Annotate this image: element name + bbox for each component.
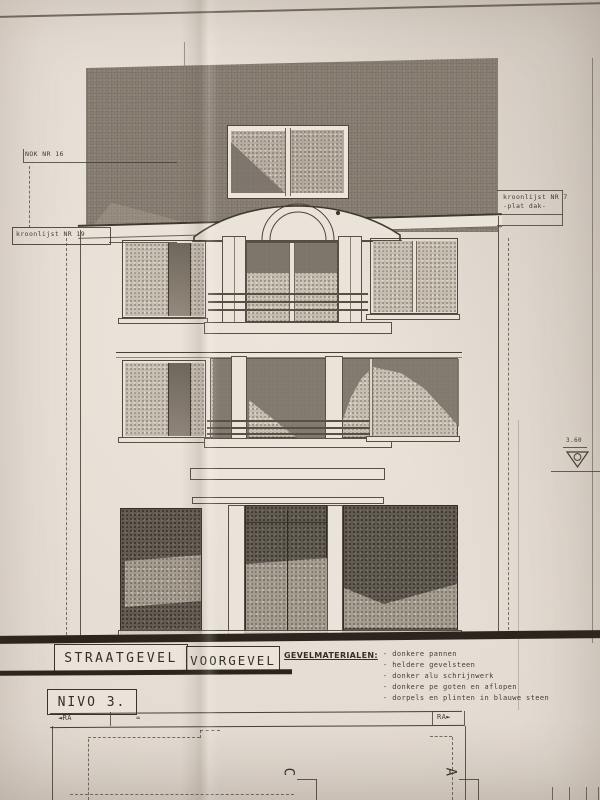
- kroonlijst-left-label: kroonlijst NR 19: [16, 231, 85, 238]
- title-straatgevel: STRAATGEVEL: [64, 651, 178, 666]
- plan-strip-bottom-line: [50, 725, 464, 728]
- sheet-top-edge-line: [0, 2, 600, 18]
- kroonlijst-right-tick: [562, 190, 563, 226]
- railing-mid-bar2: [207, 427, 370, 429]
- railing-floor2-bar1: [208, 293, 368, 295]
- kroonlijst-right-line-bottom: [497, 225, 563, 226]
- sheet-border-right: [592, 58, 593, 643]
- window-floor2-right-mullion: [412, 241, 417, 312]
- plan-dashed-step-h: [200, 730, 220, 731]
- grid-c-bracket-v: [316, 779, 317, 800]
- plan-wall-right: [465, 726, 466, 800]
- title-box-straatgevel: STRAATGEVEL: [54, 644, 188, 672]
- storefront-right-glass: [343, 505, 458, 636]
- grid-a-bracket-h: [459, 779, 479, 780]
- kroonlijst-left-box: kroonlijst NR 19: [12, 227, 111, 245]
- railing-mid-bar3: [207, 433, 370, 435]
- railing-floor2-bar2: [208, 301, 368, 303]
- ra-right-label: RA: [437, 713, 446, 721]
- material-item-5: - dorpels en plinten in blauwe steen: [383, 694, 549, 702]
- ra-right-cell: RA►: [437, 713, 451, 721]
- paper-fold-line-right: [518, 420, 519, 710]
- window-mid-left-glass: [125, 363, 204, 436]
- window-floor2-left-dark-pane: [168, 243, 191, 316]
- material-item-2: - heldere gevelsteen: [383, 661, 475, 669]
- nivo-box: NIVO 3.: [47, 689, 137, 715]
- boundary-dashed-right: [508, 238, 509, 635]
- title-voorgevel: VOORGEVEL: [190, 653, 276, 668]
- pilaster-floor2-right-centerline: [350, 237, 351, 331]
- level-value-underline: [563, 447, 587, 448]
- nok-label: NOK NR 16: [25, 151, 64, 158]
- pier-ground-left: [228, 505, 245, 636]
- kroonlijst-right-label: kroonlijst NR 7: [503, 194, 568, 201]
- window-floor2-right: [370, 238, 458, 314]
- window-mid-left: [122, 360, 206, 438]
- lintel-slab: [190, 468, 385, 480]
- approx-mark: ≈: [136, 714, 141, 722]
- pier-ground-right: [327, 505, 343, 636]
- sill-floor2-right: [366, 314, 460, 320]
- level-value-label: 3.60: [566, 438, 582, 445]
- title-heavy-underline: [0, 669, 292, 676]
- cornice-line-mid-1: [116, 352, 462, 353]
- kroonlijst-right-line-top: [497, 190, 563, 191]
- storefront-left-reflection: [121, 509, 203, 637]
- plan-wall-left: [52, 726, 53, 800]
- photographed-elevation-sheet: NOK NR 16 kroonlijst NR 19 kroonlijst NR…: [0, 0, 600, 800]
- railing-floor2-bar3: [208, 309, 368, 311]
- window-floor2-left-glass: [125, 243, 204, 316]
- bottom-tick-1: [552, 787, 553, 800]
- grid-a-bracket-v: [478, 779, 479, 800]
- kroonlijst-left-leader: [109, 242, 177, 243]
- materials-heading: GEVELMATERIALEN:: [284, 651, 378, 660]
- plan-dashed-left-v: [88, 739, 89, 800]
- sill-mid-right: [366, 436, 460, 442]
- sill-floor2-left: [118, 318, 208, 324]
- kroonlijst-right-sublabel: -plat dak-: [503, 203, 546, 210]
- sill-mid-left: [118, 437, 210, 443]
- bottom-tick-2: [569, 787, 570, 800]
- balcony-slab-floor2: [204, 322, 392, 334]
- plan-strip-divider-right: [432, 711, 433, 725]
- pilaster-floor2-left: [222, 236, 246, 332]
- ra-left-cell: ◄RA: [58, 714, 72, 722]
- bottom-tick-3: [586, 787, 587, 800]
- grid-letter-c: C: [280, 768, 296, 777]
- dormer-window: [228, 126, 348, 198]
- plan-dashed-left-h: [88, 737, 200, 738]
- boundary-dashed-left: [66, 238, 67, 635]
- plan-dashed-right-h: [430, 736, 452, 737]
- material-item-4: - donkere pe goten en aflopen: [383, 683, 517, 691]
- grid-letter-a: A: [442, 768, 458, 777]
- railing-mid-bar1: [207, 420, 370, 422]
- material-item-3: - donker alu schrijnwerk: [383, 672, 494, 680]
- pilaster-floor2-right: [338, 236, 362, 332]
- dormer-mullion: [285, 128, 291, 196]
- material-item-1: - donkere pannen: [383, 650, 457, 658]
- entrance-door-glass: [245, 505, 327, 636]
- bottom-tick-4: [598, 787, 599, 800]
- plan-dashed-step-v: [200, 730, 201, 738]
- window-floor2-left: [122, 240, 206, 318]
- level-marker-icon: [565, 450, 590, 469]
- nok-leader-line: [24, 162, 177, 163]
- door-split-line: [287, 510, 288, 632]
- level-datum-line: [551, 471, 600, 472]
- nivo-label: NIVO 3.: [58, 695, 127, 710]
- grid-c-bracket-h: [297, 779, 317, 780]
- window-mid-left-dark-pane: [168, 363, 191, 436]
- dormer-pane-right: [291, 130, 344, 193]
- plan-strip-divider-left: [110, 712, 111, 726]
- pilaster-floor2-left-centerline: [234, 237, 235, 331]
- party-wall-left-line: [80, 230, 81, 635]
- storefront-left-glass: [120, 508, 202, 636]
- door-transom-line: [246, 522, 328, 523]
- kroonlijst-right-line-mid: [497, 214, 563, 215]
- ra-right-arrow-icon: ►: [446, 713, 451, 721]
- party-wall-right-line: [498, 216, 499, 635]
- plan-strip-end-right: [464, 711, 465, 726]
- nok-leader-tick: [23, 149, 24, 163]
- nok-dashed-line: [29, 166, 30, 228]
- ra-left-label: RA: [63, 714, 72, 722]
- paper-fold-line-top: [184, 42, 185, 69]
- plan-dashed-bottom: [70, 794, 294, 795]
- entrance-canopy: [192, 497, 384, 504]
- storefront-right-reflection: [344, 506, 459, 637]
- ground-line: [0, 630, 600, 644]
- balcony-slab-mid: [204, 438, 392, 448]
